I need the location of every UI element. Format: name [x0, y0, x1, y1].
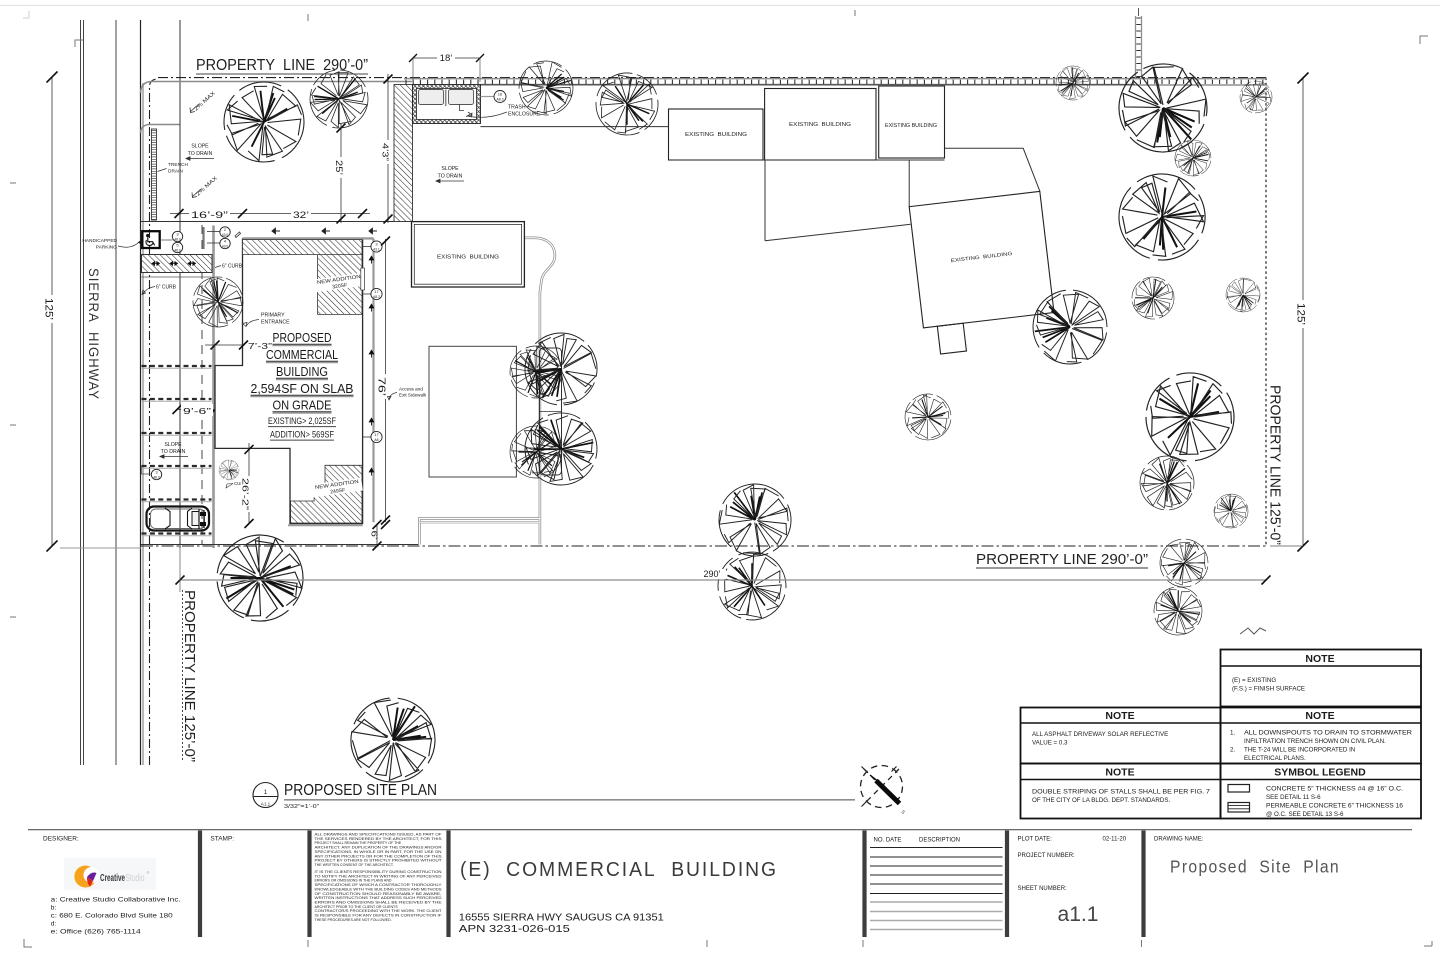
svg-text:Studio: Studio: [126, 872, 145, 884]
svg-text:SYMBOL LEGEND: SYMBOL LEGEND: [1274, 767, 1366, 779]
svg-text:43.1: 43.1: [373, 248, 380, 252]
svg-text:CONCRETE 5” THICKNESS #4 @ 16”: CONCRETE 5” THICKNESS #4 @ 16” O.C.: [1266, 786, 1403, 793]
svg-text:EXISTING> 2,025SF: EXISTING> 2,025SF: [268, 416, 336, 427]
svg-text:®: ®: [147, 870, 150, 875]
svg-text:PLOT DATE:: PLOT DATE:: [1018, 837, 1053, 843]
svg-text:48.0: 48.0: [174, 238, 181, 242]
svg-text:EXISTING BUILDING: EXISTING BUILDING: [437, 255, 499, 261]
svg-text:SLOPE: SLOPE: [441, 166, 459, 172]
svg-text:DOUBLE STRIPING OF STALLS SHAL: DOUBLE STRIPING OF STALLS SHALL BE PER F…: [1032, 789, 1211, 796]
svg-text:48.0: 48.0: [174, 249, 181, 253]
svg-text:26’-2”: 26’-2”: [241, 478, 251, 510]
svg-text:OF THE CITY OF LA BLDG. DEPT.: OF THE CITY OF LA BLDG. DEPT. STANDARDS.: [1032, 797, 1170, 804]
svg-text:PRIMARY: PRIMARY: [261, 313, 285, 319]
svg-text:c: 680 E. Colorado Blvd Suite: c: 680 E. Colorado Blvd Suite 180: [51, 913, 173, 920]
svg-text:(F.S.) = FINISH SURFACE: (F.S.) = FINISH SURFACE: [1232, 686, 1305, 693]
svg-text:THE T-24 WILL BE INCORPORATED: THE T-24 WILL BE INCORPORATED IN: [1244, 747, 1355, 754]
svg-text:17: 17: [374, 289, 379, 294]
svg-text:PROPOSED SITE PLAN: PROPOSED SITE PLAN: [284, 782, 437, 799]
svg-text:NOTE: NOTE: [1305, 710, 1334, 722]
svg-text:TRENCH: TRENCH: [168, 162, 189, 168]
svg-text:SEE DETAIL 11 S-6: SEE DETAIL 11 S-6: [1266, 794, 1321, 801]
svg-text:6” CURB: 6” CURB: [156, 285, 177, 291]
svg-text:EXISTING BUILDING: EXISTING BUILDING: [789, 122, 851, 128]
svg-text:1.: 1.: [1230, 730, 1235, 737]
svg-text:@ O.C. SEE DETAIL 13 S-6: @ O.C. SEE DETAIL 13 S-6: [1266, 811, 1344, 818]
svg-text:COMMERCIAL: COMMERCIAL: [266, 347, 338, 362]
svg-text:DESCRIPTION: DESCRIPTION: [919, 838, 960, 844]
svg-text:TO DRAIN: TO DRAIN: [438, 174, 463, 180]
svg-text:SLOPE: SLOPE: [191, 144, 209, 150]
svg-text:Creative: Creative: [100, 872, 125, 884]
svg-text:NOTE: NOTE: [1105, 767, 1134, 779]
svg-text:TO DRAIN: TO DRAIN: [188, 151, 213, 157]
svg-text:DRAIN: DRAIN: [168, 169, 183, 175]
svg-text:EXISTING BUILDING: EXISTING BUILDING: [885, 123, 937, 129]
svg-text:ALL DOWNSPOUTS TO DRAIN TO STO: ALL DOWNSPOUTS TO DRAIN TO STORMWATER: [1244, 730, 1413, 737]
svg-text:NO. DATE: NO. DATE: [874, 838, 902, 844]
svg-text:PROPERTY LINE 125’-0”: PROPERTY LINE 125’-0”: [181, 590, 197, 762]
svg-text:e: Office (626) 765-1114: e: Office (626) 765-1114: [51, 929, 141, 936]
svg-text:PROPERTY LINE 290’-0”: PROPERTY LINE 290’-0”: [196, 57, 368, 74]
svg-text:76’: 76’: [376, 377, 387, 396]
svg-text:ENTRANCE: ENTRANCE: [261, 320, 290, 326]
svg-text:02-11-20: 02-11-20: [1103, 837, 1127, 843]
svg-text:THE WRITTEN CONSENT OF THE ARC: THE WRITTEN CONSENT OF THE ARCHITECT.: [315, 863, 394, 867]
svg-text:TRASH: TRASH: [508, 105, 526, 111]
svg-text:48.0: 48.0: [153, 476, 160, 480]
svg-text:9’-6”: 9’-6”: [183, 406, 211, 416]
svg-text:b:: b:: [51, 905, 57, 912]
svg-text:A8.3: A8.3: [497, 98, 504, 102]
svg-text:NOTE: NOTE: [1305, 653, 1334, 665]
svg-text:ELECTRICAL PLANS.: ELECTRICAL PLANS.: [1244, 755, 1306, 762]
svg-text:16’-9”: 16’-9”: [191, 210, 228, 220]
svg-text:NOTE: NOTE: [1105, 710, 1134, 722]
svg-text:7’-3”: 7’-3”: [248, 341, 272, 351]
svg-text:290’: 290’: [703, 569, 720, 579]
svg-text:Exit Sidewalk: Exit Sidewalk: [399, 393, 427, 398]
svg-text:4’3”: 4’3”: [381, 143, 390, 161]
svg-text:BUILDING: BUILDING: [276, 364, 328, 379]
svg-text:43.0: 43.0: [222, 245, 229, 249]
svg-text:VALUE = 0.3: VALUE = 0.3: [1032, 740, 1068, 747]
svg-text:3/32”=1’-0”: 3/32”=1’-0”: [284, 804, 319, 810]
svg-text:HANDICAPPED: HANDICAPPED: [82, 238, 117, 244]
svg-text:2.: 2.: [1230, 747, 1235, 754]
svg-text:125’: 125’: [1295, 303, 1307, 325]
svg-text:STAMP:: STAMP:: [210, 836, 234, 843]
svg-text:(E) COMMERCIAL BUILDING: (E) COMMERCIAL BUILDING: [460, 859, 778, 881]
svg-text:18’: 18’: [440, 53, 453, 64]
svg-text:16555 SIERRA HWY SAUGUS CA 913: 16555 SIERRA HWY SAUGUS CA 91351: [459, 912, 664, 924]
svg-text:43.0: 43.0: [222, 233, 229, 237]
svg-text:PERMEABLE CONCRETE 6” THICKNES: PERMEABLE CONCRETE 6” THICKNESS 16: [1266, 803, 1404, 810]
svg-text:ON GRADE: ON GRADE: [273, 398, 332, 413]
svg-text:(E) = EXISTING: (E) = EXISTING: [1232, 677, 1276, 684]
svg-text:Access and: Access and: [399, 387, 423, 392]
svg-text:PROPERTY LINE 290’-0”: PROPERTY LINE 290’-0”: [976, 552, 1148, 568]
svg-text:SLOPE: SLOPE: [164, 442, 182, 448]
svg-text:PROPERTY LINE 125’-0”: PROPERTY LINE 125’-0”: [1267, 385, 1283, 545]
svg-text:A8: A8: [374, 438, 378, 442]
svg-text:SIERRA HIGHWAY: SIERRA HIGHWAY: [86, 268, 101, 400]
svg-text:125’: 125’: [43, 298, 55, 320]
svg-text:d:: d:: [51, 921, 57, 928]
svg-text:a: Creative Studio Collaborat: a: Creative Studio Collaborative Inc.: [51, 897, 181, 904]
svg-text:PROJECT NUMBER:: PROJECT NUMBER:: [1018, 853, 1076, 859]
svg-text:25’: 25’: [334, 160, 344, 175]
svg-text:ALL ASPHALT DRIVEWAY SOLAR REF: ALL ASPHALT DRIVEWAY SOLAR REFLECTIVE: [1032, 731, 1168, 738]
svg-text:PROPOSED: PROPOSED: [273, 330, 332, 345]
svg-text:a1.1: a1.1: [1058, 903, 1099, 926]
svg-text:EXISTING BUILDING: EXISTING BUILDING: [685, 132, 747, 138]
svg-text:THESE PROCEDURES ARE NOT FOLLO: THESE PROCEDURES ARE NOT FOLLOWED.: [315, 918, 392, 922]
svg-text:17: 17: [374, 432, 379, 437]
svg-text:ENCLOSURE: ENCLOSURE: [508, 112, 541, 118]
svg-text:PARKING: PARKING: [96, 245, 118, 251]
svg-text:A1.1: A1.1: [261, 802, 271, 807]
svg-text:DRAWING NAME:: DRAWING NAME:: [1154, 837, 1204, 843]
svg-text:Proposed Site Plan: Proposed Site Plan: [1170, 857, 1340, 877]
svg-text:6’: 6’: [370, 531, 379, 540]
svg-text:32’: 32’: [293, 210, 309, 220]
svg-text:6” CURB: 6” CURB: [222, 264, 243, 270]
svg-text:SHEET NUMBER:: SHEET NUMBER:: [1018, 886, 1068, 892]
svg-text:DESIGNER:: DESIGNER:: [43, 836, 79, 843]
svg-text:INFILTRATION TRENCH SHOWN ON C: INFILTRATION TRENCH SHOWN ON CIVIL PLAN.: [1244, 738, 1386, 745]
svg-text:A8.2: A8.2: [373, 295, 380, 299]
svg-text:APN 3231-026-015: APN 3231-026-015: [459, 923, 570, 935]
svg-text:2,594SF ON SLAB: 2,594SF ON SLAB: [251, 381, 354, 396]
svg-text:16: 16: [498, 92, 503, 97]
svg-text:ADDITION> 569SF: ADDITION> 569SF: [270, 430, 334, 441]
